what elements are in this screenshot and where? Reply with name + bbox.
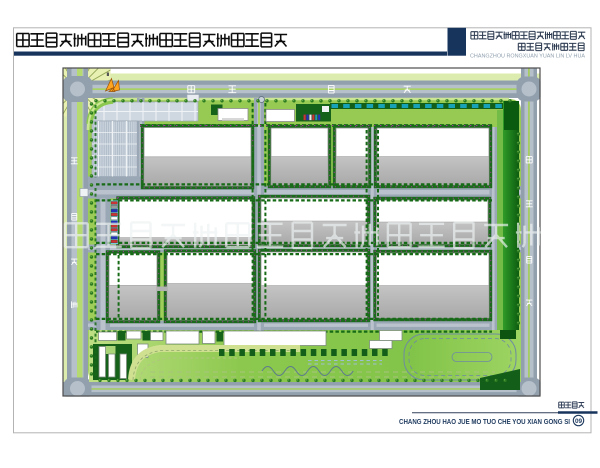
- svg-text:CHANG ZHOU HAO JUE MO TUO CHE: CHANG ZHOU HAO JUE MO TUO CHE YOU XIAN G…: [399, 417, 570, 426]
- svg-text:09: 09: [575, 418, 583, 425]
- svg-text:CHANGZHOU RONGXUAN YUAN LIN LV: CHANGZHOU RONGXUAN YUAN LIN LV HUA: [470, 53, 585, 59]
